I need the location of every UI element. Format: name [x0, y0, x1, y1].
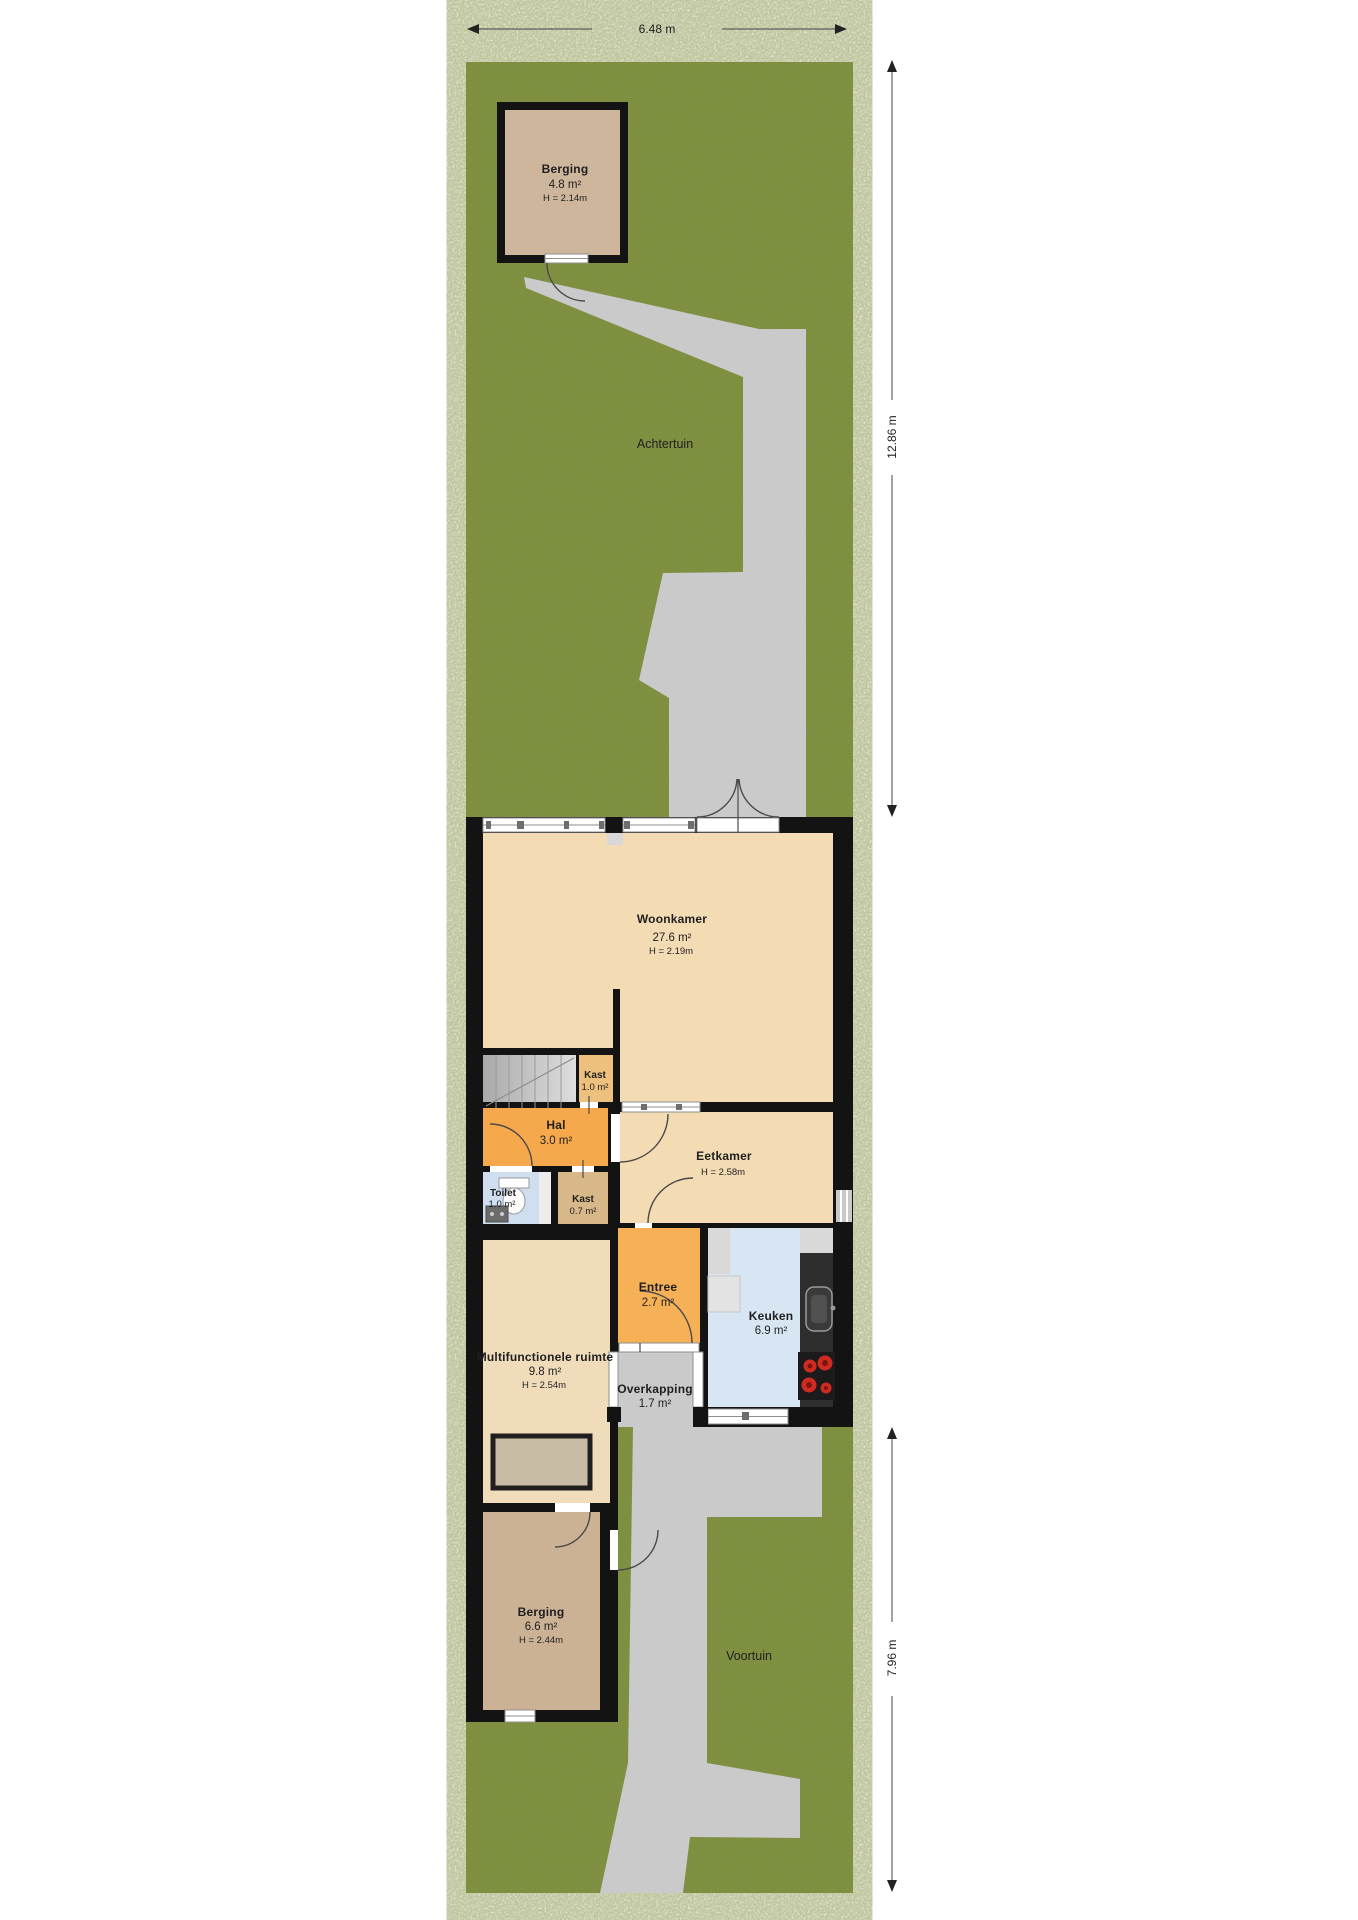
woonkamer-stub-wall	[613, 989, 620, 1102]
voortuin-label: Voortuin	[726, 1649, 772, 1663]
keuken-area: 6.9 m²	[755, 1325, 788, 1337]
toilet-kast-wall	[551, 1172, 558, 1224]
stair-kast-wall	[576, 1055, 579, 1108]
overkapping-area: 1.7 m²	[639, 1398, 672, 1410]
overkapping-left-post	[607, 1407, 621, 1422]
woonkamer-hal-wall	[483, 1048, 620, 1055]
toilet-tank	[499, 1178, 529, 1188]
keuken-name: Keuken	[749, 1309, 794, 1323]
berging-exterior-door	[610, 1530, 618, 1570]
kitchen-cabinet-2	[708, 1276, 740, 1312]
eetkamer-side-window	[836, 1190, 852, 1222]
arrow-right	[835, 24, 847, 34]
floorplan-svg: Berging 4.8 m² H = 2.14m Woonkamer 27.6 …	[0, 0, 1358, 1920]
hal-eetkamer-door	[611, 1114, 620, 1162]
multifunctionele-object	[493, 1436, 590, 1488]
floorplan-page: Berging 4.8 m² H = 2.14m Woonkamer 27.6 …	[0, 0, 1358, 1920]
multifunctionele-area: 9.8 m²	[529, 1366, 562, 1378]
berging-voortuin-height: H = 2.44m	[519, 1635, 563, 1646]
kitchen-faucet	[831, 1306, 836, 1311]
achtertuin-label: Achtertuin	[637, 437, 693, 451]
berging-top-area: 4.8 m²	[549, 179, 582, 191]
eetkamer-name: Eetkamer	[696, 1149, 752, 1163]
berging-interior-door	[555, 1503, 590, 1512]
overkapping-name: Overkapping	[617, 1382, 693, 1396]
overkapping-right-post-strip	[693, 1352, 703, 1407]
overkapping-right-post	[693, 1407, 708, 1427]
berging-voortuin-name: Berging	[518, 1605, 565, 1619]
hal-name: Hal	[546, 1118, 565, 1132]
entree-area: 2.7 m²	[642, 1297, 675, 1309]
woonkamer-name: Woonkamer	[637, 912, 707, 926]
kast-boven-area: 1.0 m²	[582, 1082, 609, 1093]
kitchen-sink-basin	[811, 1295, 827, 1323]
toilet-name: Toilet	[490, 1188, 517, 1199]
berging-voortuin-area: 6.6 m²	[525, 1621, 558, 1633]
toilet-door	[490, 1166, 532, 1172]
kitchen-cabinet-1	[708, 1228, 730, 1274]
arrow-up-front	[887, 1427, 897, 1439]
kast-klein-name: Kast	[572, 1194, 594, 1205]
kast-boven-name: Kast	[584, 1070, 606, 1081]
woonkamer-area: 27.6 m²	[653, 932, 692, 944]
arrow-left	[467, 24, 479, 34]
multifunctionele-height: H = 2.54m	[522, 1380, 566, 1391]
counter-end	[800, 1228, 833, 1253]
entree-name: Entree	[639, 1280, 678, 1294]
hal-area: 3.0 m²	[540, 1135, 573, 1147]
multifunctionele-name: Multifunctionele ruimte	[477, 1350, 614, 1364]
eetkamer-height: H = 2.58m	[701, 1167, 745, 1178]
arrow-up-back	[887, 60, 897, 72]
dimension-top-label: 6.48 m	[639, 22, 676, 36]
arrow-down-back	[887, 805, 897, 817]
dimension-back-label: 12.86 m	[885, 415, 899, 458]
front-door-frame	[619, 1343, 699, 1352]
toilet-area: 1.0 m²	[489, 1199, 516, 1210]
hal-top-wall	[483, 1102, 620, 1108]
pier-stub	[607, 833, 623, 845]
toilet-counter	[539, 1172, 551, 1224]
entree-eetkamer-door	[635, 1223, 652, 1228]
dimension-front-label: 7.96 m	[885, 1640, 899, 1677]
berging-top-name: Berging	[542, 162, 589, 176]
berging-top-height: H = 2.14m	[543, 193, 587, 204]
woonkamer-height: H = 2.19m	[649, 946, 693, 957]
arrow-down-front	[887, 1880, 897, 1892]
entree-keuken-wall	[700, 1228, 708, 1343]
kast-klein-area: 0.7 m²	[570, 1206, 597, 1217]
